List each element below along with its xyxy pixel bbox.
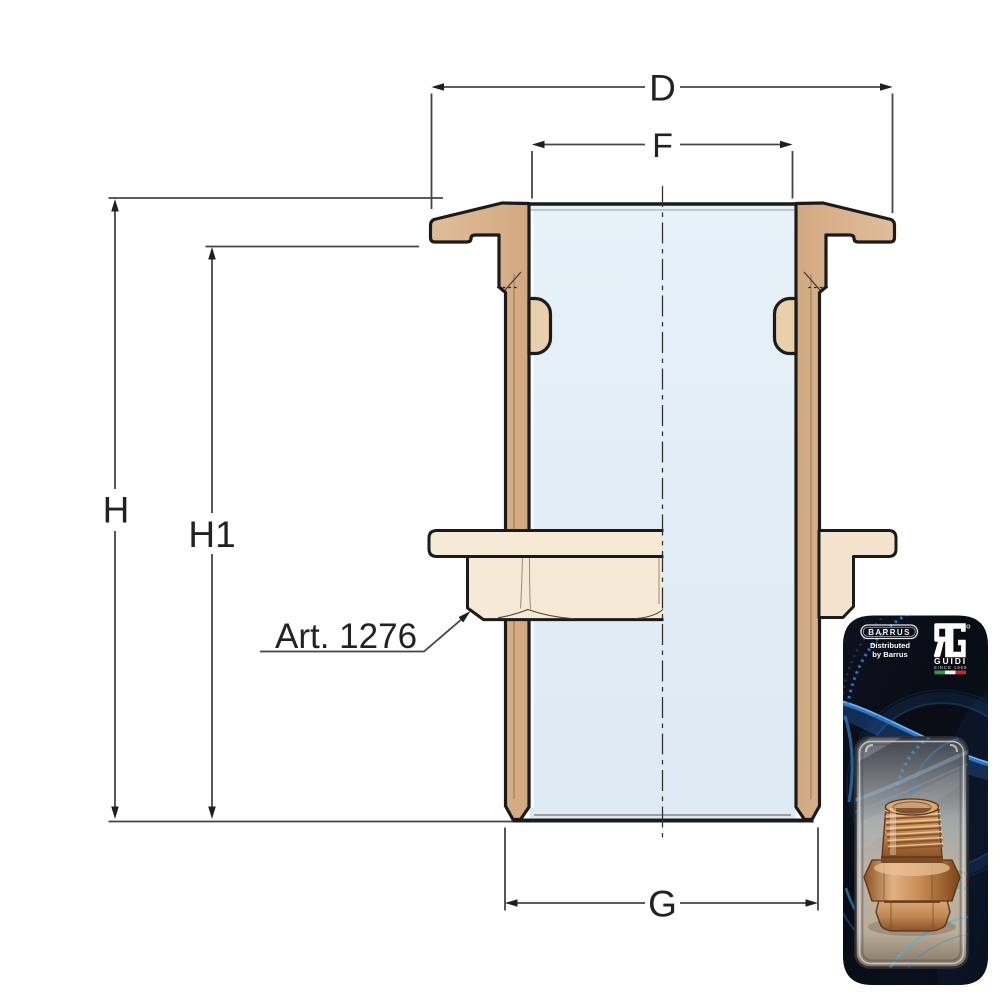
svg-text:SINCE 1968: SINCE 1968 [934,665,968,670]
svg-text:D: D [649,68,676,109]
svg-text:by Barrus: by Barrus [872,650,907,659]
svg-text:H: H [103,490,130,531]
svg-text:Distributed: Distributed [870,641,910,650]
svg-text:Art. 1276: Art. 1276 [275,617,417,656]
svg-text:G: G [648,884,677,925]
svg-text:H1: H1 [188,514,235,555]
svg-text:BARRUS: BARRUS [868,628,911,637]
svg-text:F: F [652,127,673,165]
